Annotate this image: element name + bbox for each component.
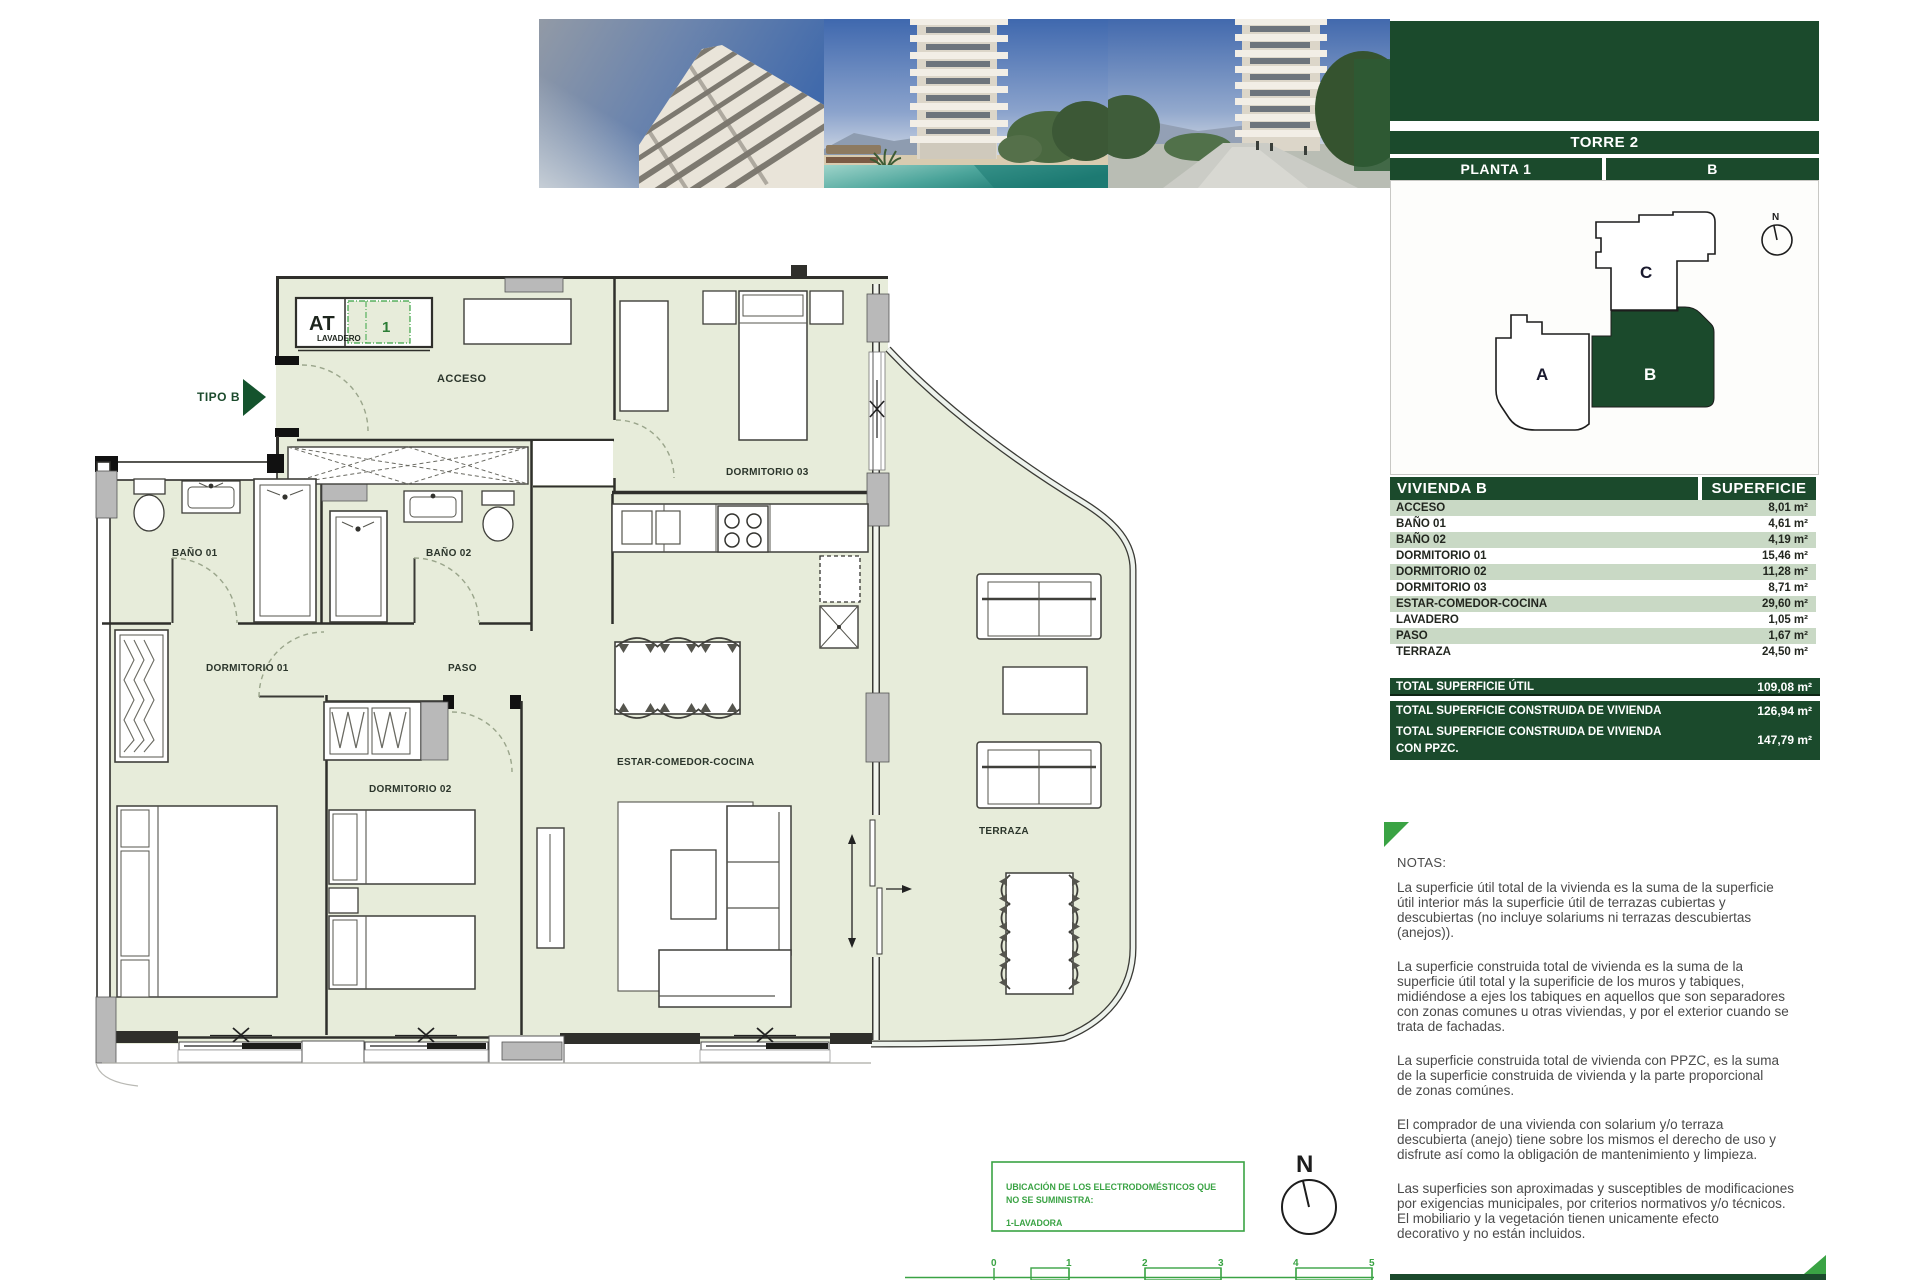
svg-text:1: 1 bbox=[382, 319, 390, 336]
svg-text:3: 3 bbox=[1218, 1258, 1224, 1269]
svg-text:UBICACIÓN DE LOS ELECTRODOMÉST: UBICACIÓN DE LOS ELECTRODOMÉSTICOS QUE bbox=[1006, 1181, 1216, 1192]
svg-text:4: 4 bbox=[1293, 1258, 1299, 1269]
svg-text:LAVADERO: LAVADERO bbox=[317, 334, 361, 343]
svg-text:TIPO B: TIPO B bbox=[197, 390, 240, 404]
svg-text:ESTAR-COMEDOR-COCINA: ESTAR-COMEDOR-COCINA bbox=[617, 757, 754, 768]
svg-text:DORMITORIO 02: DORMITORIO 02 bbox=[369, 784, 452, 795]
svg-text:1: 1 bbox=[1066, 1258, 1072, 1269]
svg-text:BAÑO 02: BAÑO 02 bbox=[426, 546, 472, 559]
svg-text:NO SE SUMINISTRA:: NO SE SUMINISTRA: bbox=[1006, 1195, 1094, 1205]
svg-text:C: C bbox=[1640, 263, 1652, 282]
svg-text:0: 0 bbox=[991, 1258, 997, 1269]
svg-text:TERRAZA: TERRAZA bbox=[979, 826, 1029, 837]
svg-text:A: A bbox=[1536, 365, 1548, 384]
svg-text:2: 2 bbox=[1142, 1258, 1148, 1269]
svg-text:B: B bbox=[1644, 365, 1656, 384]
svg-text:AT: AT bbox=[309, 313, 335, 335]
svg-text:ACCESO: ACCESO bbox=[437, 373, 487, 385]
svg-text:DORMITORIO 01: DORMITORIO 01 bbox=[206, 663, 289, 674]
svg-text:5: 5 bbox=[1369, 1258, 1375, 1269]
svg-text:N: N bbox=[1772, 212, 1779, 223]
svg-text:N: N bbox=[1296, 1151, 1313, 1178]
svg-text:DORMITORIO 03: DORMITORIO 03 bbox=[726, 467, 809, 478]
svg-text:1-LAVADORA: 1-LAVADORA bbox=[1006, 1218, 1063, 1228]
svg-text:PASO: PASO bbox=[448, 663, 477, 674]
svg-text:BAÑO 01: BAÑO 01 bbox=[172, 546, 218, 559]
